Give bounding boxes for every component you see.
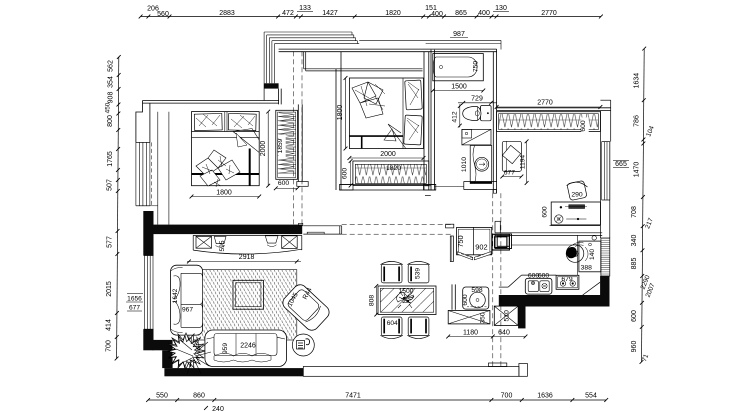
svg-text:800: 800: [107, 115, 114, 127]
svg-text:1859: 1859: [277, 138, 284, 153]
svg-text:2770: 2770: [541, 10, 557, 17]
svg-text:130: 130: [495, 5, 507, 12]
svg-text:539: 539: [415, 268, 422, 279]
svg-text:600: 600: [542, 206, 549, 218]
svg-text:354: 354: [108, 76, 115, 88]
svg-text:1800: 1800: [216, 189, 232, 196]
svg-text:1634: 1634: [634, 73, 641, 89]
svg-text:290: 290: [571, 192, 583, 199]
svg-text:987: 987: [453, 31, 465, 38]
svg-text:133: 133: [299, 5, 311, 12]
svg-text:2918: 2918: [239, 254, 255, 261]
svg-text:700: 700: [106, 340, 113, 352]
svg-text:700: 700: [501, 393, 513, 400]
svg-text:598: 598: [471, 287, 483, 294]
svg-text:2015: 2015: [106, 281, 113, 297]
svg-text:1500: 1500: [451, 83, 467, 90]
svg-text:240: 240: [212, 406, 224, 411]
svg-text:860: 860: [193, 393, 205, 400]
svg-text:729: 729: [471, 96, 483, 103]
svg-text:600: 600: [580, 120, 587, 132]
svg-text:1010: 1010: [461, 157, 468, 172]
svg-text:600: 600: [342, 168, 349, 180]
svg-text:550: 550: [156, 393, 168, 400]
svg-text:2770: 2770: [537, 100, 553, 107]
svg-text:560: 560: [157, 11, 169, 18]
svg-text:7471: 7471: [345, 393, 361, 400]
svg-text:885: 885: [631, 258, 638, 270]
svg-text:562: 562: [108, 60, 115, 72]
svg-text:600: 600: [278, 180, 290, 187]
svg-text:750: 750: [456, 235, 465, 247]
svg-text:1820: 1820: [386, 165, 401, 172]
svg-text:600: 600: [462, 294, 469, 306]
svg-text:412: 412: [452, 111, 459, 123]
svg-text:865: 865: [455, 10, 467, 17]
svg-text:2883: 2883: [219, 10, 235, 17]
svg-text:1800: 1800: [337, 105, 344, 121]
svg-text:808: 808: [368, 295, 375, 307]
svg-text:507: 507: [107, 179, 114, 191]
svg-text:510: 510: [504, 310, 511, 322]
svg-text:1636: 1636: [537, 393, 553, 400]
svg-text:786: 786: [634, 115, 641, 127]
svg-text:1656: 1656: [127, 296, 142, 303]
svg-text:604: 604: [387, 320, 398, 327]
svg-text:1820: 1820: [385, 10, 401, 17]
svg-text:400: 400: [431, 11, 443, 18]
svg-text:640: 640: [498, 329, 510, 336]
svg-text:472: 472: [282, 10, 294, 17]
svg-text:577: 577: [107, 236, 114, 248]
svg-text:908: 908: [108, 92, 115, 104]
svg-text:665: 665: [615, 161, 627, 168]
svg-text:708: 708: [631, 206, 638, 218]
svg-text:677: 677: [129, 305, 140, 312]
svg-text:2246: 2246: [240, 343, 256, 350]
svg-text:960: 960: [631, 341, 638, 353]
svg-text:388: 388: [581, 264, 593, 271]
svg-text:600: 600: [631, 310, 638, 322]
svg-text:677: 677: [504, 170, 515, 177]
svg-text:2000: 2000: [380, 151, 396, 158]
svg-text:350: 350: [480, 312, 487, 323]
svg-text:450: 450: [105, 102, 112, 113]
svg-text:959: 959: [222, 343, 229, 354]
svg-text:600: 600: [538, 272, 550, 279]
svg-text:750: 750: [473, 61, 480, 73]
svg-text:140: 140: [589, 249, 596, 260]
svg-text:902: 902: [475, 243, 487, 252]
svg-text:1427: 1427: [322, 10, 338, 17]
svg-text:400: 400: [478, 10, 490, 17]
svg-text:414: 414: [106, 319, 113, 331]
svg-text:1180: 1180: [463, 329, 478, 336]
svg-text:2000: 2000: [260, 141, 267, 157]
svg-text:1470: 1470: [634, 162, 641, 178]
svg-text:967: 967: [182, 307, 193, 314]
svg-text:554: 554: [585, 393, 597, 400]
svg-text:1642: 1642: [172, 288, 179, 303]
svg-text:679: 679: [561, 276, 573, 283]
svg-text:1765: 1765: [107, 151, 114, 167]
svg-text:1194: 1194: [519, 155, 526, 170]
svg-text:595: 595: [219, 240, 226, 251]
svg-text:340: 340: [631, 235, 638, 247]
